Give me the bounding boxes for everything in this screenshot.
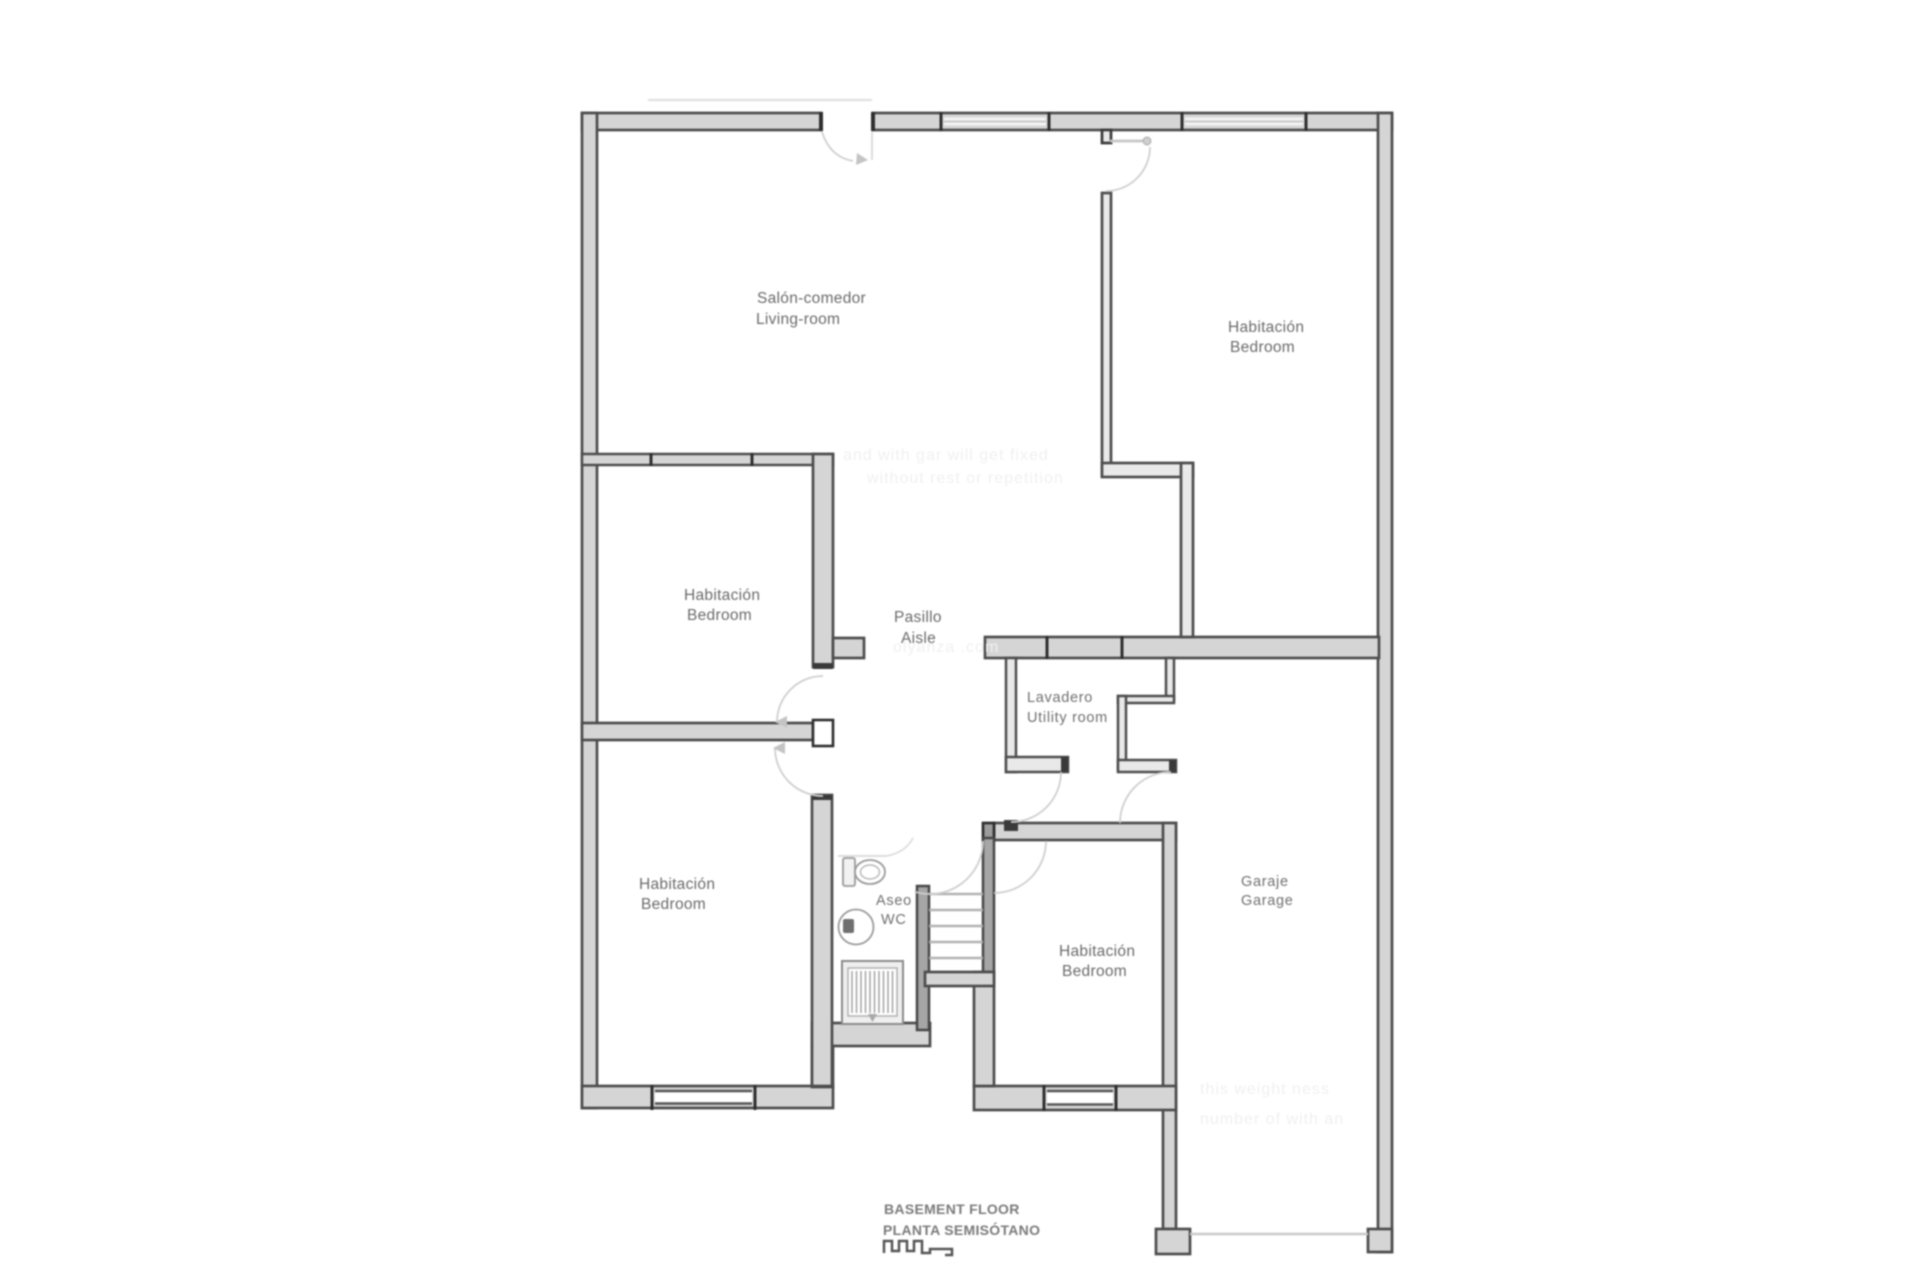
svg-text:PLANTA SEMISÓTANO: PLANTA SEMISÓTANO <box>883 1221 1040 1238</box>
svg-text:Habitación: Habitación <box>1228 319 1304 336</box>
svg-text:Salón-comedor: Salón-comedor <box>757 290 866 307</box>
svg-text:Habitación: Habitación <box>639 876 715 893</box>
svg-text:Habitación: Habitación <box>1059 943 1135 960</box>
svg-text:Lavadero: Lavadero <box>1027 690 1093 706</box>
svg-text:Garage: Garage <box>1241 893 1294 909</box>
svg-text:Bedroom: Bedroom <box>641 896 706 913</box>
svg-text:Pasillo: Pasillo <box>894 609 942 626</box>
svg-text:Utility room: Utility room <box>1027 710 1108 726</box>
svg-text:and with gar will get fixed: and with gar will get fixed <box>843 447 1049 464</box>
svg-text:number of with an: number of with an <box>1200 1111 1344 1128</box>
svg-text:Bedroom: Bedroom <box>1230 339 1295 356</box>
svg-text:Garaje: Garaje <box>1241 874 1289 890</box>
svg-text:WC: WC <box>881 912 907 928</box>
svg-text:BASEMENT FLOOR: BASEMENT FLOOR <box>884 1201 1020 1217</box>
svg-text:Habitación: Habitación <box>684 587 760 604</box>
svg-text:olyanza .com: olyanza .com <box>893 639 999 656</box>
svg-text:Aseo: Aseo <box>876 893 912 909</box>
svg-text:without rest or repetition: without rest or repetition <box>866 470 1064 487</box>
svg-text:this weight ness: this weight ness <box>1200 1081 1330 1098</box>
svg-text:Living-room: Living-room <box>756 311 840 328</box>
svg-text:Bedroom: Bedroom <box>687 607 752 624</box>
svg-text:Bedroom: Bedroom <box>1062 963 1127 980</box>
